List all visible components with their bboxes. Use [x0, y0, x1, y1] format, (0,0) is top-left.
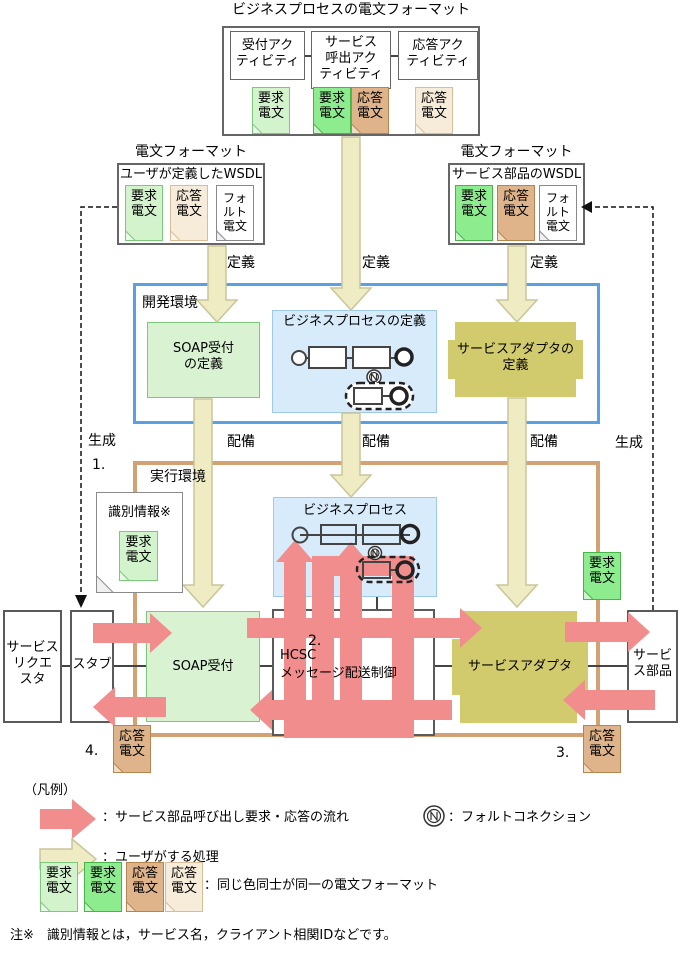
footnote: 注※ 識別情報とは，サービス名，クライアント相関IDなどです。 [10, 928, 397, 944]
deploy-label-2: 配備 [362, 434, 390, 451]
format-caption-left: 電文フォーマット [117, 144, 265, 161]
response-message-doc: 応答 電文 [113, 725, 151, 773]
legend-fault-label: ：フォルトコネクション [448, 810, 591, 826]
page-title: ビジネスプロセスの電文フォーマット [180, 2, 522, 19]
fault-message-doc: フォ ルト 電文 [216, 185, 254, 241]
diagram-canvas: ビジネスプロセスの電文フォーマット 受付アク ティビティ サービス 呼出アク テ… [0, 0, 681, 953]
request-message-doc: 要求 電文 [583, 552, 621, 600]
request-message-doc: 要求 電文 [125, 185, 163, 241]
dev-environment-label: 開発環境 [142, 292, 198, 312]
legend-format-label: ：同じ色同士が同一の電文フォーマット [204, 878, 438, 894]
response-message-doc: 応答 電文 [497, 185, 535, 241]
request-message-doc: 要求 電文 [252, 87, 290, 134]
deploy-label-1: 配備 [227, 434, 255, 451]
generate-label-right: 生成 [615, 435, 643, 452]
step-4-label: 4. [85, 743, 98, 760]
define-label-1: 定義 [227, 255, 255, 272]
legend-flow-arrow [40, 799, 96, 839]
legend-response-doc-dark: 応答 電文 [126, 862, 164, 912]
define-label-2: 定義 [362, 255, 390, 272]
legend-request-doc: 要求 電文 [84, 862, 122, 912]
run-environment-label: 実行環境 [150, 466, 206, 486]
deploy-label-3: 配備 [530, 434, 558, 451]
fault-connection-icon [421, 803, 447, 829]
format-caption-right: 電文フォーマット [448, 144, 585, 161]
step-3-label: 3. [556, 745, 569, 762]
legend-request-doc-light: 要求 電文 [40, 862, 78, 912]
response-message-doc: 応答 電文 [583, 725, 621, 773]
bp-runtime-diagram [273, 497, 437, 597]
step-1-label: 1. [92, 457, 105, 474]
legend-flow-label: ：サービス部品呼び出し要求・応答の流れ [102, 810, 349, 826]
hcsc-label: HCSC メッセージ配送制御 [280, 647, 397, 683]
request-message-doc: 要求 電文 [119, 531, 158, 581]
fault-message-doc: フォ ルト 電文 [539, 185, 577, 241]
define-label-3: 定義 [530, 255, 558, 272]
response-message-doc: 応答 電文 [170, 185, 208, 241]
generate-label-left: 生成 [88, 433, 116, 450]
legend-caption: （凡例） [24, 783, 76, 799]
request-message-doc: 要求 電文 [313, 87, 351, 134]
response-message-doc: 応答 電文 [351, 87, 389, 134]
response-message-doc: 応答 電文 [415, 87, 453, 134]
legend-response-doc-light: 応答 電文 [165, 862, 203, 912]
request-message-doc: 要求 電文 [455, 185, 493, 241]
